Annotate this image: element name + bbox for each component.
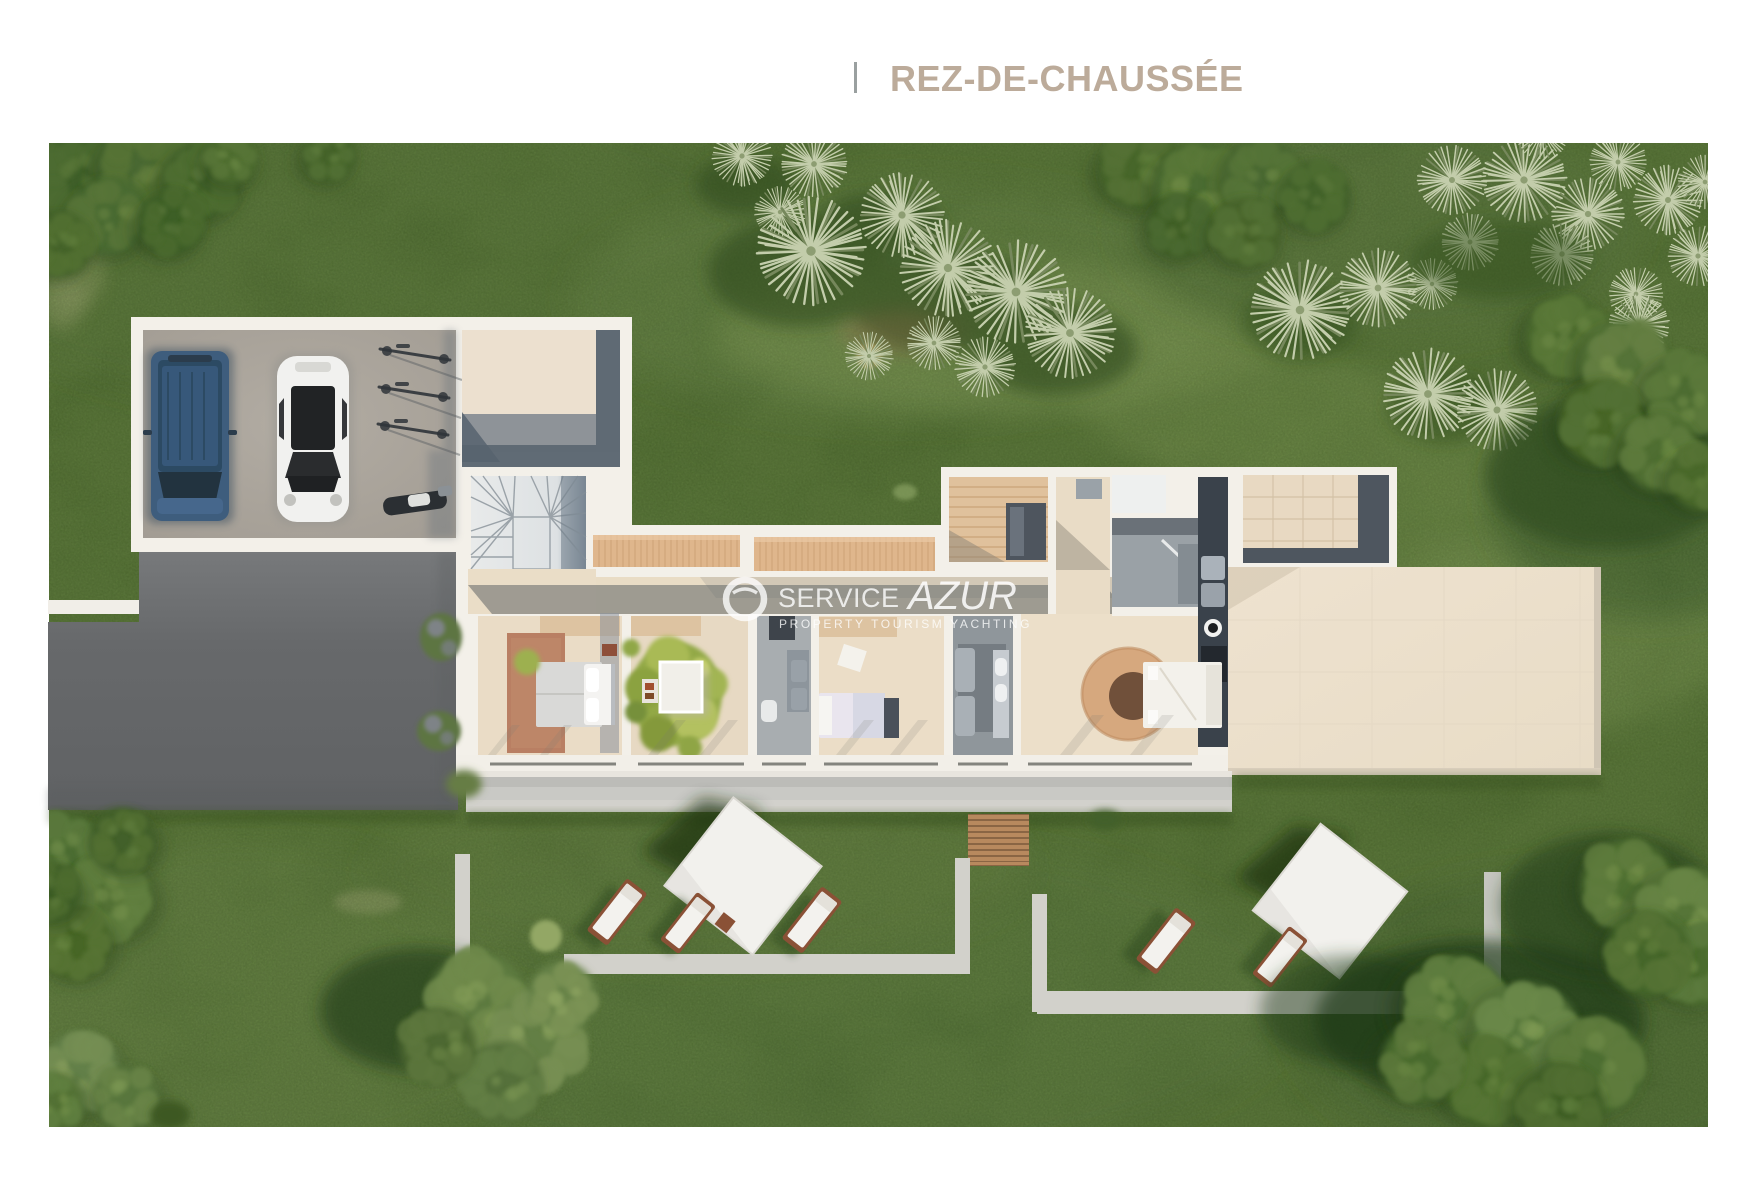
svg-text:REZ-DE-CHAUSSÉE: REZ-DE-CHAUSSÉE: [890, 58, 1244, 99]
svg-text:SERVICE: SERVICE: [778, 583, 900, 613]
svg-text:PROPERTY TOURISM YACHTING: PROPERTY TOURISM YACHTING: [779, 617, 1032, 631]
svg-text:AZUR: AZUR: [906, 574, 1017, 618]
